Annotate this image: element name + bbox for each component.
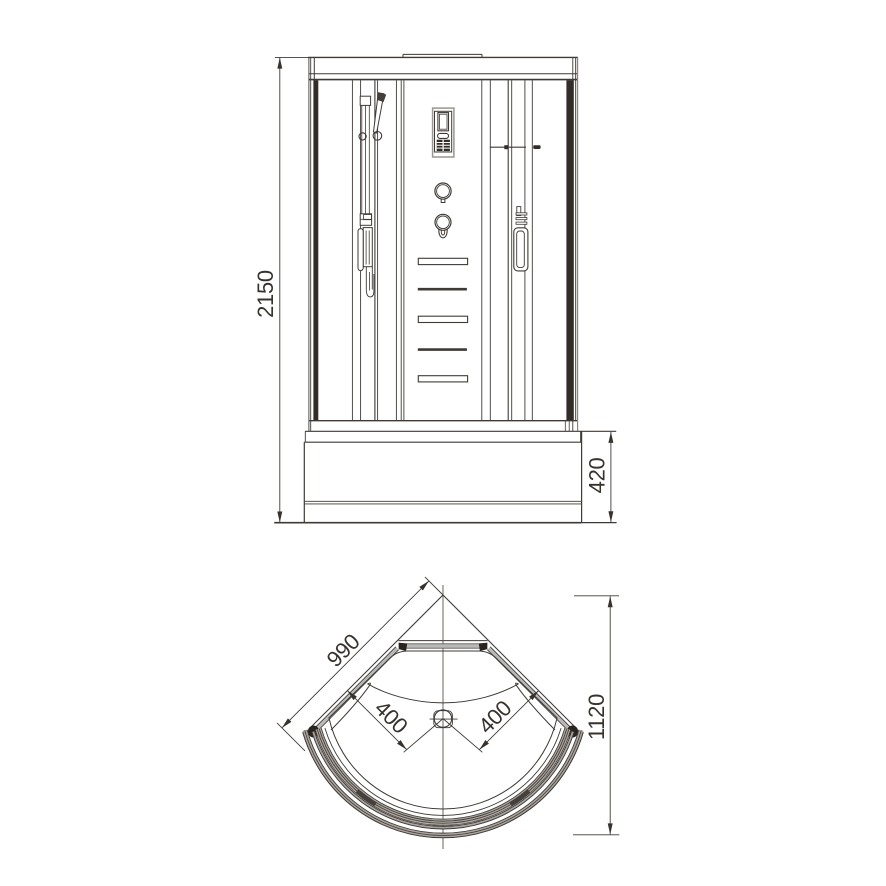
svg-text:2150: 2150 <box>253 270 278 318</box>
svg-text:1120: 1120 <box>584 694 609 740</box>
svg-text:400: 400 <box>473 695 516 738</box>
svg-text:420: 420 <box>584 457 609 493</box>
svg-text:990: 990 <box>322 629 365 672</box>
svg-text:400: 400 <box>370 696 413 739</box>
